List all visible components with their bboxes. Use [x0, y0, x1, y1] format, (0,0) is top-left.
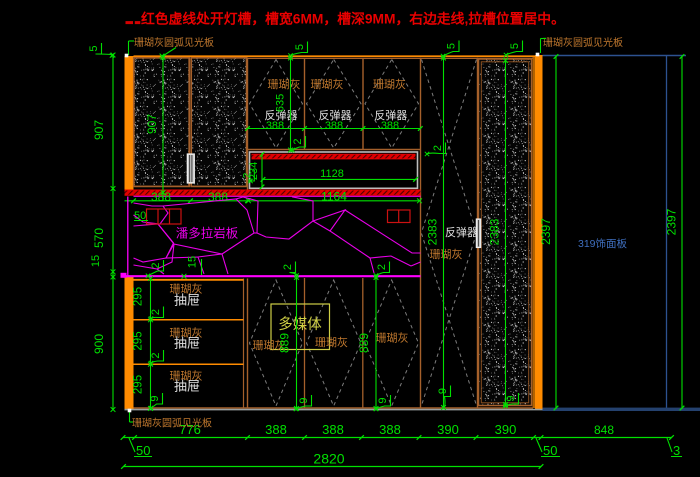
- svg-text:红色虚线处开灯槽，槽宽6MM，槽深9MM，右边走线,拉槽位置: 红色虚线处开灯槽，槽宽6MM，槽深9MM，右边走线,拉槽位置居中。: [141, 11, 565, 27]
- svg-text:2: 2: [282, 264, 294, 270]
- svg-text:抽屉: 抽屉: [174, 379, 200, 394]
- svg-text:2397: 2397: [665, 208, 679, 235]
- svg-text:2383: 2383: [426, 218, 440, 245]
- svg-text:295: 295: [133, 331, 145, 350]
- svg-text:295: 295: [133, 287, 145, 306]
- svg-text:388: 388: [322, 422, 344, 437]
- svg-text:2: 2: [292, 138, 304, 144]
- svg-text:848: 848: [594, 423, 614, 437]
- svg-text:5: 5: [294, 44, 306, 50]
- svg-text:2: 2: [150, 309, 162, 315]
- svg-text:2: 2: [432, 145, 444, 151]
- svg-text:907: 907: [92, 120, 106, 140]
- svg-text:9: 9: [298, 397, 310, 403]
- svg-text:907: 907: [145, 114, 159, 134]
- svg-text:珊瑚灰圆弧见光板: 珊瑚灰圆弧见光板: [543, 36, 623, 49]
- svg-text:50: 50: [543, 443, 557, 458]
- svg-text:2397: 2397: [539, 218, 553, 245]
- svg-text:388: 388: [265, 422, 287, 437]
- svg-text:2: 2: [150, 352, 162, 358]
- svg-text:珊瑚灰: 珊瑚灰: [373, 77, 406, 91]
- svg-text:抽屉: 抽屉: [174, 293, 200, 308]
- svg-text:抽屉: 抽屉: [174, 336, 200, 351]
- svg-text:570: 570: [92, 228, 106, 248]
- svg-text:2: 2: [150, 262, 162, 268]
- svg-text:5: 5: [88, 45, 100, 51]
- svg-text:388: 388: [379, 422, 401, 437]
- svg-text:1128: 1128: [320, 168, 344, 180]
- svg-text:2: 2: [242, 172, 253, 178]
- svg-text:1164: 1164: [321, 190, 347, 204]
- svg-text:390: 390: [437, 422, 459, 437]
- svg-text:反弹器: 反弹器: [445, 225, 478, 239]
- svg-text:15: 15: [187, 256, 199, 268]
- svg-text:50: 50: [136, 443, 150, 458]
- svg-text:2: 2: [376, 264, 388, 270]
- svg-text:珊瑚灰圆弧见光板: 珊瑚灰圆弧见光板: [132, 417, 212, 430]
- svg-text:388: 388: [266, 120, 284, 132]
- svg-text:388: 388: [151, 190, 171, 204]
- svg-text:9: 9: [437, 388, 449, 394]
- svg-text:9: 9: [149, 395, 161, 401]
- svg-text:889: 889: [278, 333, 292, 353]
- svg-text:9: 9: [377, 397, 389, 403]
- svg-text:珊瑚灰: 珊瑚灰: [315, 335, 348, 349]
- svg-text:889: 889: [357, 333, 371, 353]
- svg-text:9: 9: [505, 395, 517, 401]
- svg-text:2820: 2820: [313, 451, 344, 467]
- svg-text:635: 635: [275, 94, 287, 112]
- svg-text:5: 5: [446, 43, 458, 49]
- svg-text:3: 3: [673, 443, 680, 458]
- svg-text:15: 15: [90, 255, 102, 267]
- svg-text:珊瑚灰圆弧见光板: 珊瑚灰圆弧见光板: [134, 36, 214, 49]
- svg-text:潘多拉岩板: 潘多拉岩板: [176, 226, 239, 241]
- svg-text:多媒体: 多媒体: [278, 316, 322, 333]
- svg-text:388: 388: [325, 120, 343, 132]
- svg-text:5: 5: [509, 43, 521, 49]
- svg-text:319饰面板: 319饰面板: [578, 237, 628, 250]
- svg-text:珊瑚灰: 珊瑚灰: [376, 331, 409, 345]
- svg-text:295: 295: [133, 375, 145, 394]
- svg-text:珊瑚灰: 珊瑚灰: [311, 77, 344, 91]
- svg-text:388: 388: [381, 120, 399, 132]
- svg-text:390: 390: [495, 422, 517, 437]
- svg-text:2383: 2383: [488, 218, 502, 245]
- svg-text:珊瑚灰: 珊瑚灰: [430, 247, 463, 261]
- svg-text:珊瑚灰: 珊瑚灰: [268, 77, 301, 91]
- svg-text:900: 900: [92, 334, 106, 354]
